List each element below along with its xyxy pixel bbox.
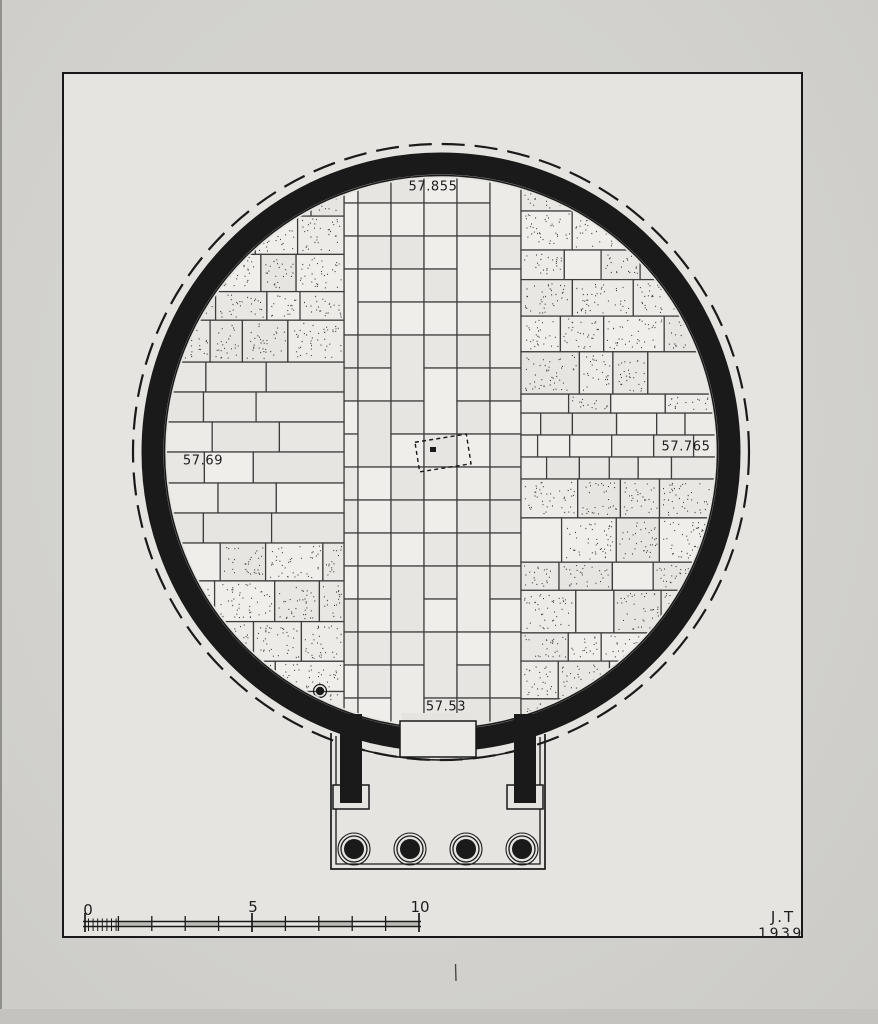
signature-initials: J.T xyxy=(771,908,795,926)
scale-label-ten: 10 xyxy=(410,898,429,916)
elevation-label-bottom: 57.53 xyxy=(426,700,466,715)
scale-label-zero: 0 xyxy=(83,901,93,919)
tholos-plan-drawing xyxy=(0,0,878,1024)
elevation-label-left: 57.69 xyxy=(183,454,223,469)
scale-label-five: 5 xyxy=(248,898,258,916)
elevation-label-top: 57.855 xyxy=(408,180,457,195)
signature-year: 1939 xyxy=(758,926,804,942)
elevation-label-right: 57.765 xyxy=(661,440,710,455)
photo-of-drawing: 57.855 57.69 57.765 57.53 0 5 10 J.T 193… xyxy=(0,0,878,1024)
